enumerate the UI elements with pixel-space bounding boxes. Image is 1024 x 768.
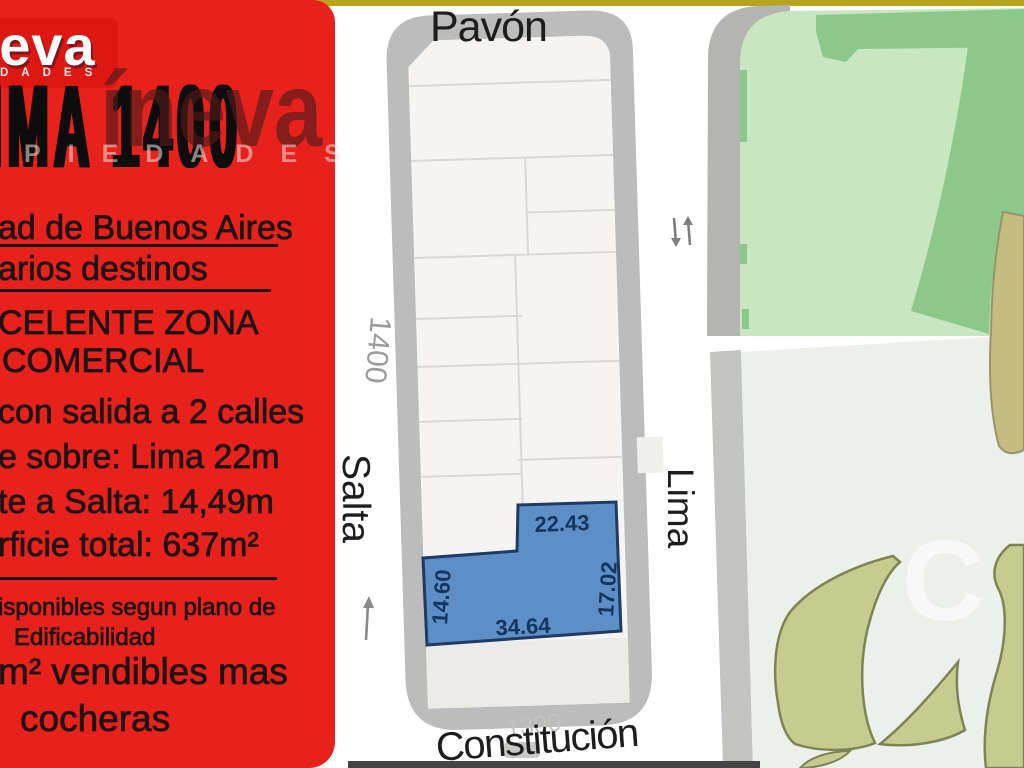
svg-text:34.64: 34.64 xyxy=(495,613,552,641)
svg-text:Pavón: Pavón xyxy=(430,3,547,51)
svg-text:C: C xyxy=(902,518,984,645)
svg-text:14.60: 14.60 xyxy=(427,569,456,626)
svg-text:22.43: 22.43 xyxy=(534,510,590,537)
svg-text:Salta: Salta xyxy=(334,454,377,543)
svg-text:1400: 1400 xyxy=(358,315,397,384)
svg-text:Lima: Lima xyxy=(660,468,701,549)
svg-text:17.02: 17.02 xyxy=(593,561,622,618)
